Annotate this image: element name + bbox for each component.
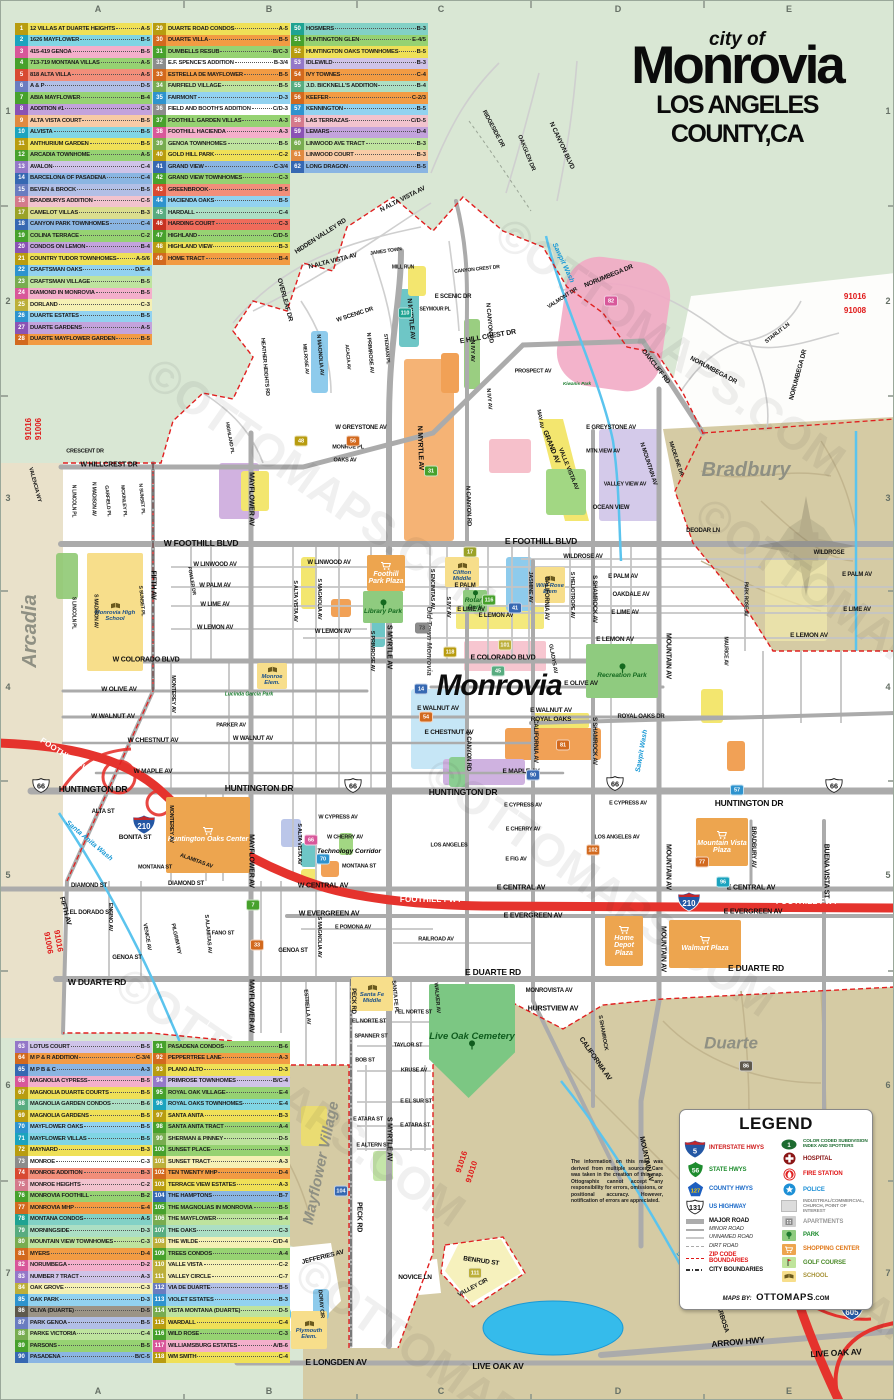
- legend-row: MINOR ROAD: [684, 1227, 774, 1233]
- major-road-icon: [684, 1219, 706, 1224]
- subdivision-spotter: 41: [508, 603, 522, 614]
- index-grid-ref: B-6: [279, 1044, 290, 1050]
- index-leader: [84, 1217, 139, 1219]
- index-row: 24DIAMOND IN MONROVIAB-5: [15, 288, 152, 300]
- index-leader: [80, 38, 139, 40]
- index-grid-ref: C-3: [279, 175, 290, 181]
- highway-shield: 66: [825, 778, 843, 799]
- index-grid-ref: C-2/3: [412, 95, 428, 101]
- index-number: 68: [15, 1099, 28, 1111]
- golf-course-icon: [778, 1257, 800, 1268]
- map-label: W CYPRESS AV: [318, 815, 357, 821]
- index-leader: [73, 50, 140, 52]
- index-grid-ref: B-3: [417, 60, 428, 66]
- index-grid-ref: B-4: [417, 83, 428, 89]
- index-number: 22: [15, 265, 28, 277]
- index-row: 90PASADENAB/C-5: [15, 1352, 152, 1364]
- map-label: PECK RD: [350, 988, 356, 1014]
- index-name: MONROVIA MHP: [28, 1205, 74, 1211]
- index-grid-ref: D-4: [141, 1251, 152, 1257]
- index-leader: [212, 1275, 278, 1277]
- index-grid-ref: B-3: [417, 26, 428, 32]
- index-number: 67: [15, 1087, 28, 1099]
- index-name: MORNINGSIDE: [28, 1228, 69, 1234]
- subdivision-index-col-1: 112 VILLAS AT DUARTE HEIGHTSA-521626 MAY…: [15, 23, 152, 345]
- index-name: IVY TOWNES: [304, 72, 340, 78]
- map-label: ENCINO AV: [106, 903, 112, 931]
- index-grid-ref: E-4/5: [412, 37, 428, 43]
- index-number: 114: [153, 1306, 166, 1318]
- subdivision-spotter: 86: [739, 1061, 753, 1072]
- grid-row-label: 4: [885, 682, 890, 692]
- index-number: 111: [153, 1271, 166, 1283]
- index-name: MAGNOLIA CYPRESS: [28, 1078, 87, 1084]
- index-row: 49HOME TRACTB-4: [153, 253, 290, 265]
- shopping-label: Walmart Plaza: [681, 945, 728, 952]
- index-number: 11: [15, 138, 28, 150]
- svg-text:127: 127: [690, 1188, 699, 1194]
- index-leader: [70, 1229, 139, 1231]
- index-row: 64M P & R ADDITIONC-3/4: [15, 1053, 152, 1065]
- index-row: 67MAGNOLIA DUARTE COURTSB-5: [15, 1087, 152, 1099]
- interstate-shield-icon: 210: [132, 815, 156, 835]
- index-number: 63: [15, 1041, 28, 1053]
- index-row: 38FOOTHILL HACIENDAA-3: [153, 127, 290, 139]
- shopping-area: Home Depot Plaza: [605, 916, 643, 966]
- index-grid-ref: D-5: [279, 1308, 290, 1314]
- index-leader: [79, 1056, 135, 1058]
- index-row: 97SANTA ANITAB-3: [153, 1110, 290, 1122]
- map-label: MONTANA ST: [342, 864, 376, 870]
- index-number: 28: [15, 334, 28, 346]
- index-name: THE WILDE: [166, 1239, 198, 1245]
- map-label: W GREYSTONE AV: [335, 425, 386, 431]
- svg-text:66: 66: [611, 780, 619, 789]
- index-row: 31DUMBELLS RESUBB/C-3: [153, 46, 290, 58]
- map-label: W CHESTNUT AV: [128, 738, 179, 745]
- highway-shield: 210: [677, 892, 701, 917]
- index-number: 20: [15, 242, 28, 254]
- index-grid-ref: B-5: [141, 118, 152, 124]
- index-name: MAYFLOWER OAKS: [28, 1124, 83, 1130]
- subdivision-spotter: 31: [424, 466, 438, 477]
- index-leader: [112, 1102, 140, 1104]
- index-number: 41: [153, 161, 166, 173]
- map-label: GENOA ST: [112, 955, 142, 961]
- index-name: DUARTE GARDENS: [28, 325, 82, 331]
- index-leader: [53, 165, 139, 167]
- grid-row-label: 4: [5, 682, 10, 692]
- index-number: 98: [153, 1122, 166, 1134]
- index-name: DORLAND: [28, 302, 58, 308]
- index-name: FAIRMONT: [166, 95, 197, 101]
- index-row: 5818 ALTA VILLAA-5: [15, 69, 152, 81]
- index-number: 96: [153, 1099, 166, 1111]
- index-name: DIAMOND IN MONROVIA: [28, 290, 95, 296]
- school-icon: [782, 1271, 796, 1282]
- index-row: 82NORUMBEGAD-2: [15, 1260, 152, 1272]
- index-number: 70: [15, 1122, 28, 1134]
- index-grid-ref: B-3: [279, 244, 290, 250]
- index-number: 44: [153, 196, 166, 208]
- index-row: 60LINWOOD AVE TRACTB-3: [291, 138, 428, 150]
- index-number: 45: [153, 207, 166, 219]
- map-label: MAYFLOWER AV: [248, 979, 255, 1033]
- index-row: 37FOOTHILL GARDEN VILLASA-3: [153, 115, 290, 127]
- index-leader: [225, 1045, 278, 1047]
- map-label: Duarte: [704, 1035, 758, 1052]
- index-name: AVALON: [28, 164, 52, 170]
- index-leader: [75, 1309, 140, 1311]
- subdivision-spotter: 81: [556, 740, 570, 751]
- index-number: 80: [15, 1237, 28, 1249]
- index-leader: [91, 280, 140, 282]
- index-number: 107: [153, 1225, 166, 1237]
- index-row: 84OAK GROVEC-3: [15, 1283, 152, 1295]
- index-grid-ref: B-4: [279, 1216, 290, 1222]
- index-name: COLINA TERRACE: [28, 233, 79, 239]
- index-number: 2: [15, 35, 28, 47]
- school-area: Santa Fe Middle: [351, 977, 393, 1011]
- index-grid-ref: B-3/4: [274, 60, 290, 66]
- map-label: S IVY AV: [444, 597, 450, 618]
- map-label: E DUARTE RD: [465, 968, 521, 977]
- school-label: Clifton Middle: [445, 570, 479, 582]
- map-label: E LIME AV: [843, 607, 871, 613]
- map-label: E CENTRAL AV: [727, 885, 775, 892]
- grid-row-label: 6: [5, 1080, 10, 1090]
- legend-label: HOSPITAL: [803, 1156, 832, 1162]
- map-label: E ALTERN ST: [356, 1143, 389, 1149]
- index-number: 82: [15, 1260, 28, 1272]
- interstate-shield-icon: 5: [684, 1139, 706, 1159]
- index-name: LEMARS: [304, 129, 329, 135]
- county-route-shield-icon: 127: [687, 1181, 704, 1197]
- index-leader: [378, 84, 415, 86]
- index-name: THE OAKS: [166, 1228, 196, 1234]
- map-title-block: city of Monrovia LOS ANGELES COUNTY,CA: [599, 29, 875, 149]
- index-row: 75MONROE HEIGHTSC-2: [15, 1179, 152, 1191]
- index-number: 76: [15, 1191, 28, 1203]
- park-area: Recreation Park: [586, 644, 658, 698]
- index-name: OLIVA (DUARTE): [28, 1308, 74, 1314]
- index-row: 50HOSMERSB-3: [291, 23, 428, 35]
- index-leader: [88, 1137, 140, 1139]
- index-name: HARDING COURT: [166, 221, 215, 227]
- index-leader: [65, 1286, 140, 1288]
- index-name: GOLD HILL PARK: [166, 152, 214, 158]
- index-name: FIELD AND BOOTH'S ADDITION: [166, 106, 251, 112]
- maps-by-prefix: MAPS BY:: [723, 1296, 752, 1302]
- index-row: 33ESTRELLA DE MAYFLOWERB-5: [153, 69, 290, 81]
- index-name: A & P: [28, 83, 44, 89]
- subdivision-index-col-5: 91PASADENA CONDOSB-692PEPPERTREE LANEA-3…: [153, 1041, 290, 1363]
- index-row: 66MAGNOLIA CYPRESSB-5: [15, 1076, 152, 1088]
- index-leader: [68, 1321, 140, 1323]
- index-grid-ref: C-3: [141, 1285, 152, 1291]
- title-city-name: Monrovia: [599, 41, 875, 91]
- legend-label: INTERSTATE HWYS: [709, 1145, 764, 1151]
- maps-by-credit: MAPS BY: OTTOMAPS.COM: [684, 1287, 868, 1305]
- index-leader: [211, 1160, 277, 1162]
- park-label: Library Park: [364, 609, 402, 616]
- shopping-center-icon: [778, 1244, 800, 1255]
- index-leader: [218, 1171, 277, 1173]
- index-leader: [226, 1091, 277, 1093]
- index-row: 59LEMARSD-4: [291, 127, 428, 139]
- map-label: E PALM AV: [842, 572, 872, 578]
- index-number: 19: [15, 230, 28, 242]
- interstate-shield-icon: 210: [677, 892, 701, 912]
- index-number: 15: [15, 184, 28, 196]
- index-grid-ref: C-4: [279, 1354, 290, 1360]
- index-grid-ref: E-4: [141, 1205, 152, 1211]
- index-number: 93: [153, 1064, 166, 1076]
- index-name: IDLEWILD: [304, 60, 332, 66]
- index-grid-ref: B-5: [279, 1285, 290, 1291]
- index-row: 4713-719 MONTANA VILLASA-5: [15, 58, 152, 70]
- hospital-icon: [778, 1152, 800, 1165]
- index-grid-ref: B-5: [279, 72, 290, 78]
- legend-row: 1COLOR CODED SUBDIVISION INDEX AND SPOTT…: [778, 1139, 868, 1150]
- map-label: W OLIVE AV: [101, 687, 137, 694]
- index-leader: [107, 176, 140, 178]
- index-name: SUNSET PLACE: [166, 1147, 210, 1153]
- index-name: MYERS: [28, 1251, 50, 1257]
- index-leader: [213, 245, 277, 247]
- index-row: 22CRAFTSMAN OAKSD/E-4: [15, 265, 152, 277]
- index-grid-ref: B-4: [279, 256, 290, 262]
- index-number: 101: [153, 1156, 166, 1168]
- index-grid-ref: B-5: [141, 141, 152, 147]
- legend-row: UNNAMED ROAD: [684, 1235, 774, 1241]
- legend-label: FIRE STATION: [803, 1171, 843, 1177]
- index-grid-ref: B-5: [141, 49, 152, 55]
- highway-shield: 66: [344, 778, 362, 799]
- map-label: MOUNTAIN AV: [665, 844, 672, 890]
- index-leader: [224, 1137, 278, 1139]
- index-name: PARKE VICTORIA: [28, 1331, 76, 1337]
- index-name: 818 ALTA VILLA: [28, 72, 71, 78]
- index-grid-ref: B-5: [141, 37, 152, 43]
- index-row: 39GENOA TOWNHOMESB-5: [153, 138, 290, 150]
- index-grid-ref: B-5: [141, 1044, 152, 1050]
- index-number: 100: [153, 1145, 166, 1157]
- index-number: 99: [153, 1133, 166, 1145]
- dirt-road-swatch: [686, 1246, 704, 1247]
- index-row: 14BARCELONA OF PASADENAC-4: [15, 173, 152, 185]
- index-row: 91PASADENA CONDOSB-6: [153, 1041, 290, 1053]
- legend-row: SCHOOL: [778, 1271, 868, 1282]
- map-label: E LIME AV: [611, 610, 639, 616]
- index-name: MAYFLOWER VILLAS: [28, 1136, 87, 1142]
- grid-column-label: D: [615, 1386, 622, 1396]
- index-row: 68MAGNOLIA GARDEN CONDOSB-6: [15, 1099, 152, 1111]
- index-number: 54: [291, 69, 304, 81]
- index-number: 25: [15, 299, 28, 311]
- subdivision-spotter: 56: [346, 436, 360, 447]
- index-row: 96ROYAL OAKS TOWNHOMESE-4: [153, 1099, 290, 1111]
- index-grid-ref: C-3: [279, 1228, 290, 1234]
- index-number: 116: [153, 1329, 166, 1341]
- index-number: 4: [15, 58, 28, 70]
- shopping-cart-icon: [618, 925, 631, 935]
- map-label: S MYRTLE AV: [386, 625, 393, 669]
- index-grid-ref: C-3: [279, 221, 290, 227]
- index-row: 63LOTUS COURTB-5: [15, 1041, 152, 1053]
- us-route-shield-icon: 66: [32, 778, 50, 794]
- index-number: 37: [153, 115, 166, 127]
- index-grid-ref: A-5: [141, 325, 152, 331]
- index-number: 13: [15, 161, 28, 173]
- index-leader: [341, 73, 415, 75]
- index-name: THE MAYFLOWER: [166, 1216, 216, 1222]
- index-grid-ref: C-2: [279, 1262, 290, 1268]
- index-leader: [83, 268, 134, 270]
- legend-row: GOLF COURSE: [778, 1257, 868, 1268]
- svg-text:210: 210: [682, 899, 696, 908]
- index-name: ANTHURIUM GARDEN: [28, 141, 89, 147]
- map-label: MTN.VIEW AV: [586, 449, 620, 455]
- index-grid-ref: B-3: [141, 1147, 152, 1153]
- grid-column-label: A: [95, 1386, 102, 1396]
- apartments-icon: [782, 1216, 796, 1227]
- map-label: S ENCINITAS AV: [428, 569, 434, 609]
- index-name: HIGHLAND VIEW: [166, 244, 212, 250]
- map-label: W DUARTE RD: [68, 978, 126, 987]
- index-number: 102: [153, 1168, 166, 1180]
- svg-text:66: 66: [349, 782, 357, 791]
- index-row: 78MONTANA CONDOSA-5: [15, 1214, 152, 1226]
- index-row: 92PEPPERTREE LANEA-3: [153, 1053, 290, 1065]
- index-leader: [80, 314, 140, 316]
- index-name: VIOLET ESTATES: [166, 1297, 214, 1303]
- map-label: W WALNUT AV: [91, 714, 135, 721]
- unnamed-road-icon: [684, 1237, 706, 1239]
- index-number: 85: [15, 1294, 28, 1306]
- index-row: 101SUNSET TRACTA-3: [153, 1156, 290, 1168]
- index-name: ROYAL OAKS TOWNHOMES: [166, 1101, 242, 1107]
- legend-row: ZIP CODE BOUNDARIES: [684, 1252, 774, 1265]
- index-leader: [197, 1355, 277, 1357]
- index-leader: [241, 1309, 277, 1311]
- index-number: 61: [291, 150, 304, 162]
- index-name: SHERMAN & PINNEY: [166, 1136, 223, 1142]
- map-label: CALIFORNIA AV: [543, 576, 549, 620]
- map-label: FIFTH AV: [150, 570, 157, 599]
- index-number: 71: [15, 1133, 28, 1145]
- index-row: 80MOUNTAIN VIEW TOWNHOMESC-3: [15, 1237, 152, 1249]
- legend-row: 5INTERSTATE HWYS: [684, 1139, 774, 1159]
- index-name: HIGHLAND: [166, 233, 197, 239]
- index-number: 115: [153, 1317, 166, 1329]
- index-number: 39: [153, 138, 166, 150]
- index-number: 50: [291, 23, 304, 35]
- index-row: 18CANYON PARK TOWNHOMESC-4: [15, 219, 152, 231]
- school-label: Wild Rose Elem: [535, 583, 565, 595]
- index-row: 100SUNSET PLACEA-3: [153, 1145, 290, 1157]
- map-label: LOS ANGELES: [430, 843, 467, 849]
- school-label: Santa Fe Middle: [351, 992, 393, 1004]
- us-route-shield-icon: 66: [344, 778, 362, 794]
- index-number: 34: [153, 81, 166, 93]
- subdivision-spotter: 96: [716, 877, 730, 888]
- subdivision-spotter: 110: [398, 308, 412, 319]
- index-name: MONTANA CONDOS: [28, 1216, 83, 1222]
- legend-label: PARK: [803, 1232, 819, 1238]
- subdivision-spotter: 48: [294, 436, 308, 447]
- index-number: 47: [153, 230, 166, 242]
- index-name: SANTA ANITA: [166, 1113, 204, 1119]
- index-grid-ref: C-4: [141, 175, 152, 181]
- index-row: 72MAYNARDB-3: [15, 1145, 152, 1157]
- apartments-icon: [778, 1216, 800, 1227]
- index-row: 118WM SMITHC-4: [153, 1352, 290, 1364]
- index-name: ADDITION #1: [28, 106, 64, 112]
- index-number: 94: [153, 1076, 166, 1088]
- park-area: Library Park: [363, 591, 403, 623]
- map-label: S PRIMROSE AV: [368, 631, 374, 672]
- book-icon: [304, 1320, 315, 1328]
- index-name: MONROE HEIGHTS: [28, 1182, 81, 1188]
- map-label: E FOOTHILL BLVD: [505, 537, 577, 546]
- index-row: 23CRAFTSMAN VILLAGEB-5: [15, 276, 152, 288]
- shopping-cart-icon: [716, 830, 729, 840]
- index-leader: [116, 27, 140, 29]
- index-number: 43: [153, 184, 166, 196]
- svg-text:56: 56: [691, 1168, 699, 1175]
- map-label: E LEMON AV: [479, 613, 514, 619]
- grid-row-label: 7: [885, 1268, 890, 1278]
- index-row: 86OLIVA (DUARTE)D-5: [15, 1306, 152, 1318]
- map-label: WILDROSE AV: [563, 554, 602, 560]
- index-grid-ref: B-4: [141, 244, 152, 250]
- index-number: 17: [15, 207, 28, 219]
- major-road-swatch: [686, 1219, 704, 1224]
- index-name: COUNTRY TUDOR TOWNHOMES: [28, 256, 116, 262]
- index-leader: [75, 1206, 140, 1208]
- legend-label: APARTMENTS: [803, 1219, 843, 1225]
- index-name: M P B & C: [28, 1067, 56, 1073]
- legend-right-column: 1COLOR CODED SUBDIVISION INDEX AND SPOTT…: [778, 1136, 868, 1284]
- index-leader: [215, 153, 278, 155]
- index-row: 52HUNTINGTON OAKS TOWNHOMESB-5: [291, 46, 428, 58]
- map-label: SPANNER ST: [354, 1034, 387, 1040]
- index-leader: [330, 130, 415, 132]
- index-grid-ref: D-3: [141, 1228, 152, 1234]
- index-name: CRAFTSMAN OAKS: [28, 267, 82, 273]
- legend-label: STATE HWYS: [709, 1167, 746, 1173]
- index-leader: [84, 1171, 140, 1173]
- index-grid-ref: B/C-4: [273, 1078, 290, 1084]
- index-leader: [211, 1286, 277, 1288]
- map-label: S MADISON AV: [93, 594, 98, 628]
- legend-row: POLICE: [778, 1183, 868, 1196]
- map-label: E DUARTE RD: [728, 964, 784, 973]
- index-number: 78: [15, 1214, 28, 1226]
- maps-by-suffix: .COM: [814, 1296, 830, 1302]
- index-grid-ref: B-3: [279, 1297, 290, 1303]
- index-name: J.D. BICKNELL'S ADDITION: [304, 83, 377, 89]
- map-label: E FIG AV: [505, 857, 526, 863]
- index-number: 8: [15, 104, 28, 116]
- index-leader: [83, 326, 140, 328]
- index-row: 106THE MAYFLOWERB-4: [153, 1214, 290, 1226]
- index-row: 30DUARTE VILLAB-5: [153, 35, 290, 47]
- index-number: 108: [153, 1237, 166, 1249]
- index-row: 110VALLE VISTAC-2: [153, 1260, 290, 1272]
- index-grid-ref: D/E-4: [135, 267, 152, 273]
